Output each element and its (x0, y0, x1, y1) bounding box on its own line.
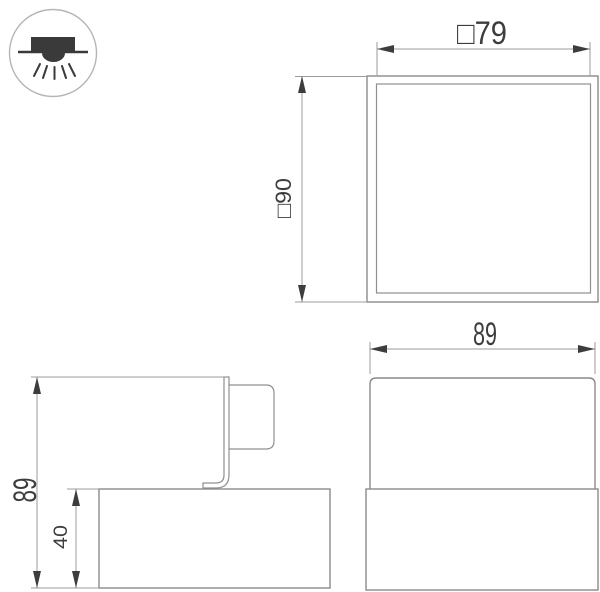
front-view-lower-body (366, 489, 598, 590)
front-view: 89 (366, 316, 598, 590)
technical-drawing-canvas: □79 □90 89 (0, 0, 600, 592)
dimension-inner-width: □79 (377, 15, 590, 76)
arrow-up (72, 489, 80, 506)
arrow-up (33, 377, 41, 394)
arrow-right (578, 345, 595, 353)
driver-box (229, 385, 274, 449)
dimension-label-inner-width: □79 (457, 15, 507, 51)
mounting-bracket (203, 377, 229, 488)
dimension-front-width: 89 (370, 316, 595, 374)
arrow-down (298, 285, 306, 302)
arrow-up (298, 76, 306, 93)
dimension-label-body-height: 40 (51, 525, 72, 549)
arrow-down (72, 571, 80, 588)
dimension-total-height: 89 (7, 377, 227, 588)
lamp-dome-icon (42, 53, 65, 62)
arrow-left (370, 345, 387, 353)
side-view: 89 40 (7, 377, 330, 588)
side-view-body (99, 489, 330, 588)
fixture-type-icon (10, 10, 97, 97)
arrow-right (573, 45, 590, 53)
lamp-body-icon (31, 37, 75, 51)
top-view-outer-square (367, 76, 598, 302)
front-view-upper-body (370, 378, 595, 489)
arrow-down (33, 571, 41, 588)
arrow-left (377, 45, 394, 53)
light-rays-icon (34, 64, 75, 79)
top-view: □79 □90 (271, 15, 598, 302)
dimension-body-height: 40 (51, 489, 99, 588)
dimension-label-outer-size: □90 (271, 178, 296, 218)
dimension-label-total-height: 89 (7, 478, 43, 503)
dimension-label-front-width: 89 (473, 316, 497, 352)
dimension-outer-size: □90 (271, 76, 366, 302)
top-view-inner-square (377, 84, 591, 293)
